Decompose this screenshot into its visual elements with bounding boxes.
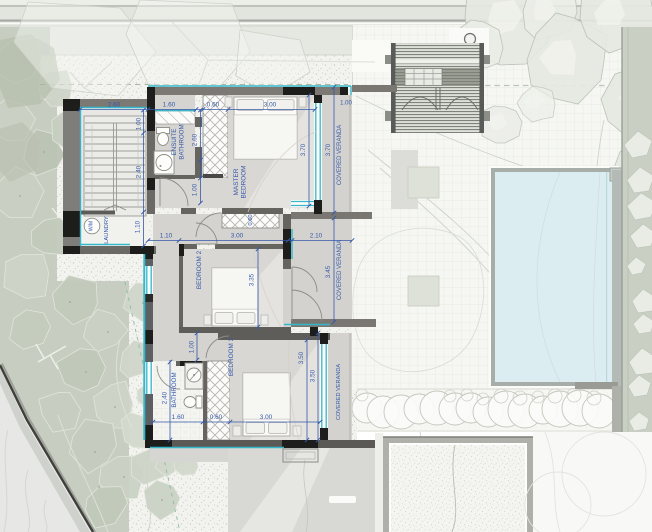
svg-text:0.60: 0.60 (248, 214, 254, 225)
svg-text:3.35: 3.35 (249, 273, 256, 286)
svg-text:BATHROOM: BATHROOM (179, 124, 186, 159)
svg-text:LAUNDRY: LAUNDRY (104, 216, 110, 244)
svg-text:0.60: 0.60 (210, 414, 223, 421)
svg-text:1.00: 1.00 (340, 101, 352, 107)
svg-text:3.45: 3.45 (325, 265, 332, 278)
svg-text:0.60: 0.60 (207, 102, 220, 109)
svg-text:BEDROOM 3: BEDROOM 3 (228, 337, 235, 376)
svg-text:BEDROOM 2: BEDROOM 2 (196, 250, 203, 289)
svg-text:2.40: 2.40 (162, 391, 169, 404)
svg-text:1.60: 1.60 (172, 414, 185, 421)
svg-text:2.60: 2.60 (108, 102, 121, 109)
svg-text:MASTER: MASTER (233, 168, 240, 195)
svg-text:W/M: W/M (89, 221, 95, 231)
svg-text:1.00: 1.00 (189, 340, 196, 353)
svg-text:COVERED VERANDA: COVERED VERANDA (337, 125, 343, 185)
svg-text:COVERED VERANDA: COVERED VERANDA (336, 364, 342, 421)
svg-text:1.00: 1.00 (136, 117, 143, 130)
svg-text:2.10: 2.10 (310, 233, 323, 240)
svg-text:BATHROOM: BATHROOM (171, 372, 178, 407)
svg-text:3.70: 3.70 (325, 143, 332, 156)
svg-text:BEDROOM: BEDROOM (241, 165, 248, 198)
svg-text:2.40: 2.40 (136, 165, 143, 178)
svg-text:1.60: 1.60 (163, 102, 176, 109)
svg-text:2.60: 2.60 (192, 133, 199, 146)
svg-text:1.00: 1.00 (192, 183, 199, 196)
svg-text:3.00: 3.00 (264, 102, 277, 109)
svg-text:1.10: 1.10 (160, 233, 173, 240)
svg-text:COVERED VERANDA: COVERED VERANDA (337, 240, 343, 300)
svg-text:3.00: 3.00 (260, 414, 273, 421)
svg-text:3.50: 3.50 (298, 351, 305, 364)
svg-text:3.70: 3.70 (300, 143, 307, 156)
svg-text:3.50: 3.50 (310, 369, 317, 382)
svg-text:3.00: 3.00 (231, 233, 244, 240)
svg-text:1.10: 1.10 (135, 220, 142, 233)
svg-text:ENSUITE: ENSUITE (171, 129, 178, 156)
